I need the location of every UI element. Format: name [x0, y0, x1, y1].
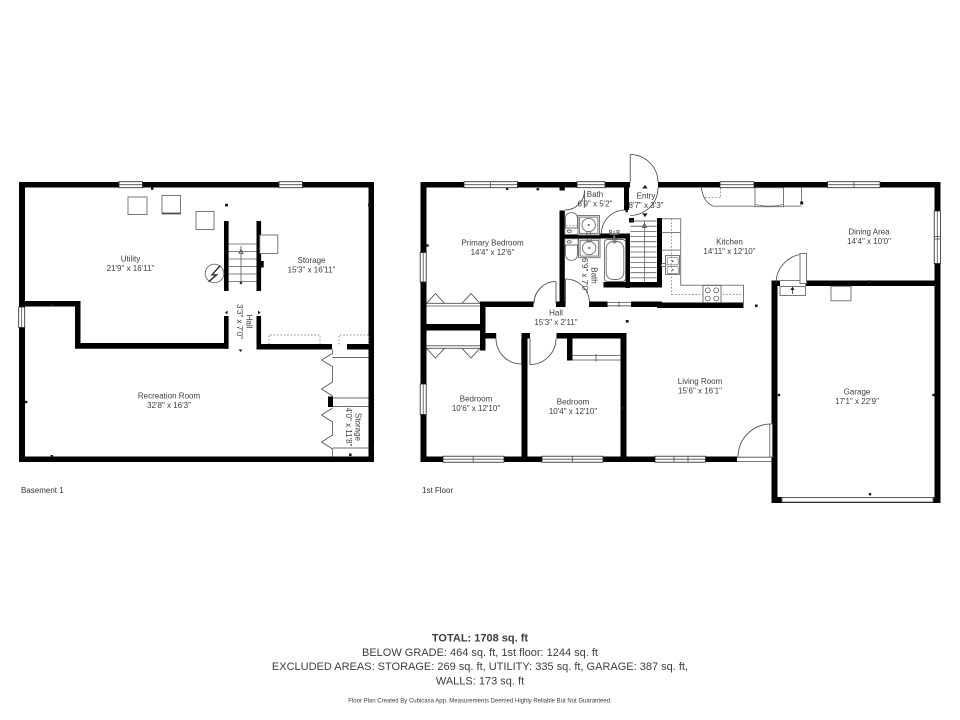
svg-text:WALLS: 173 sq. ft: WALLS: 173 sq. ft — [436, 676, 524, 688]
svg-text:14'11" x 12'10": 14'11" x 12'10" — [703, 247, 755, 256]
svg-text:Dining Area: Dining Area — [848, 228, 890, 237]
svg-text:Utility: Utility — [121, 255, 141, 264]
svg-text:1st Floor: 1st Floor — [422, 486, 453, 495]
svg-text:14'4" x 10'0": 14'4" x 10'0" — [847, 237, 891, 246]
svg-text:Living Room: Living Room — [678, 377, 723, 386]
svg-text:Storage: Storage — [354, 413, 363, 442]
svg-text:6'9" x 5'2": 6'9" x 5'2" — [578, 200, 613, 209]
svg-text:EXCLUDED AREAS: STORAGE: 269 s: EXCLUDED AREAS: STORAGE: 269 sq. ft, UTI… — [272, 661, 688, 673]
svg-text:32'8" x 16'3": 32'8" x 16'3" — [147, 401, 191, 410]
svg-text:10'4" x 12'10": 10'4" x 12'10" — [549, 407, 597, 416]
svg-text:10'6" x 12'10": 10'6" x 12'10" — [452, 404, 500, 413]
svg-text:8'7" x 3'3": 8'7" x 3'3" — [629, 201, 664, 210]
svg-text:3'3" x 7'0": 3'3" x 7'0" — [235, 304, 244, 339]
svg-text:Bath: Bath — [590, 267, 599, 283]
svg-text:4'0" x 11'8": 4'0" x 11'8" — [344, 408, 353, 447]
svg-text:Hall: Hall — [245, 315, 254, 329]
svg-text:15'3" x 2'11": 15'3" x 2'11" — [534, 318, 577, 327]
svg-text:Storage: Storage — [297, 256, 326, 265]
svg-text:14'4" x 12'6": 14'4" x 12'6" — [471, 248, 515, 257]
svg-text:Basement 1: Basement 1 — [21, 486, 64, 495]
svg-text:Bedroom: Bedroom — [557, 398, 590, 407]
svg-text:Garage: Garage — [844, 388, 871, 397]
svg-text:Recreation Room: Recreation Room — [138, 392, 201, 401]
svg-text:Hall: Hall — [549, 309, 563, 318]
svg-text:Entry: Entry — [637, 192, 656, 201]
svg-text:Bath: Bath — [587, 190, 603, 199]
svg-text:15'6" x 16'1": 15'6" x 16'1" — [678, 387, 722, 396]
svg-text:17'1" x 22'9": 17'1" x 22'9" — [835, 397, 879, 406]
svg-text:21'9" x 16'11": 21'9" x 16'11" — [107, 264, 155, 273]
svg-text:6'9" x 7'0": 6'9" x 7'0" — [580, 258, 589, 293]
svg-text:BELOW GRADE: 464 sq. ft, 1st f: BELOW GRADE: 464 sq. ft, 1st floor: 1244… — [362, 647, 598, 659]
svg-text:Kitchen: Kitchen — [716, 238, 743, 247]
svg-text:Bedroom: Bedroom — [460, 395, 493, 404]
svg-text:Floor Plan Created By Cubicasa: Floor Plan Created By Cubicasa App. Meas… — [348, 699, 612, 705]
svg-text:15'3" x 16'11": 15'3" x 16'11" — [288, 266, 336, 275]
svg-text:TOTAL: 1708 sq. ft: TOTAL: 1708 sq. ft — [432, 633, 529, 645]
svg-text:Primary Bedroom: Primary Bedroom — [461, 239, 524, 248]
